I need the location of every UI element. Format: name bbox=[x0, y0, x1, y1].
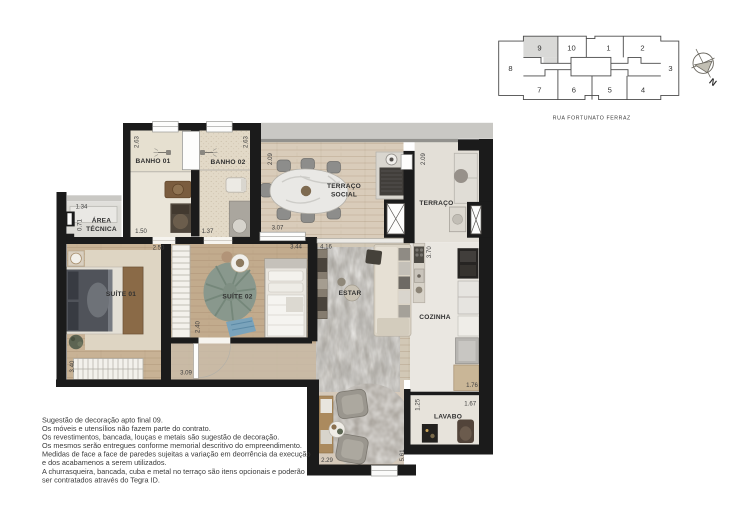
svg-text:9: 9 bbox=[537, 43, 541, 52]
svg-text:BANHO 02: BANHO 02 bbox=[211, 159, 246, 166]
svg-text:3.40: 3.40 bbox=[69, 360, 76, 372]
svg-text:10: 10 bbox=[567, 43, 575, 52]
svg-text:2.50: 2.50 bbox=[153, 245, 165, 252]
svg-text:4: 4 bbox=[641, 86, 645, 95]
svg-text:2.09: 2.09 bbox=[420, 152, 427, 164]
svg-text:1.25: 1.25 bbox=[415, 398, 422, 410]
svg-text:3.07: 3.07 bbox=[272, 225, 284, 232]
svg-text:4.16: 4.16 bbox=[320, 243, 332, 250]
svg-text:SUÍTE 01: SUÍTE 01 bbox=[106, 289, 136, 298]
svg-text:3.44: 3.44 bbox=[290, 244, 302, 251]
svg-text:TÉCNICA: TÉCNICA bbox=[86, 224, 117, 233]
svg-text:5: 5 bbox=[608, 86, 612, 95]
svg-text:3.70: 3.70 bbox=[426, 246, 433, 258]
svg-text:1.50: 1.50 bbox=[135, 228, 147, 235]
svg-text:1.67: 1.67 bbox=[464, 401, 476, 408]
svg-text:1.76: 1.76 bbox=[466, 382, 478, 389]
svg-text:2.09: 2.09 bbox=[267, 152, 274, 164]
svg-text:8: 8 bbox=[508, 64, 512, 73]
svg-text:TERRAÇO: TERRAÇO bbox=[327, 183, 361, 190]
svg-text:ser contratados através do Teg: ser contratados através do Tegra ID. bbox=[42, 475, 160, 484]
svg-text:COZINHA: COZINHA bbox=[419, 314, 450, 321]
svg-text:ÁREA: ÁREA bbox=[92, 216, 112, 225]
svg-text:N: N bbox=[707, 76, 718, 88]
svg-text:2.63: 2.63 bbox=[134, 135, 141, 147]
svg-text:5.61: 5.61 bbox=[399, 449, 406, 461]
svg-text:2.29: 2.29 bbox=[321, 457, 333, 464]
svg-text:BANHO 01: BANHO 01 bbox=[136, 158, 171, 165]
svg-text:0.71: 0.71 bbox=[77, 218, 84, 230]
svg-text:3: 3 bbox=[668, 64, 672, 73]
svg-text:6: 6 bbox=[572, 86, 576, 95]
svg-text:LAVABO: LAVABO bbox=[434, 413, 462, 420]
svg-text:ESTAR: ESTAR bbox=[339, 290, 362, 297]
svg-text:1: 1 bbox=[606, 43, 610, 52]
svg-text:2.40: 2.40 bbox=[194, 320, 201, 332]
svg-text:1.34: 1.34 bbox=[76, 204, 88, 211]
svg-text:SOCIAL: SOCIAL bbox=[331, 192, 357, 199]
svg-text:1.37: 1.37 bbox=[202, 228, 214, 235]
svg-text:3.09: 3.09 bbox=[180, 370, 192, 377]
svg-text:2.63: 2.63 bbox=[243, 135, 250, 147]
svg-text:7: 7 bbox=[537, 86, 541, 95]
svg-text:RUA FORTUNATO FERRAZ: RUA FORTUNATO FERRAZ bbox=[553, 116, 631, 122]
svg-text:SUÍTE 02: SUÍTE 02 bbox=[222, 292, 252, 301]
svg-text:TERRAÇO: TERRAÇO bbox=[419, 200, 453, 207]
svg-text:2: 2 bbox=[640, 43, 644, 52]
